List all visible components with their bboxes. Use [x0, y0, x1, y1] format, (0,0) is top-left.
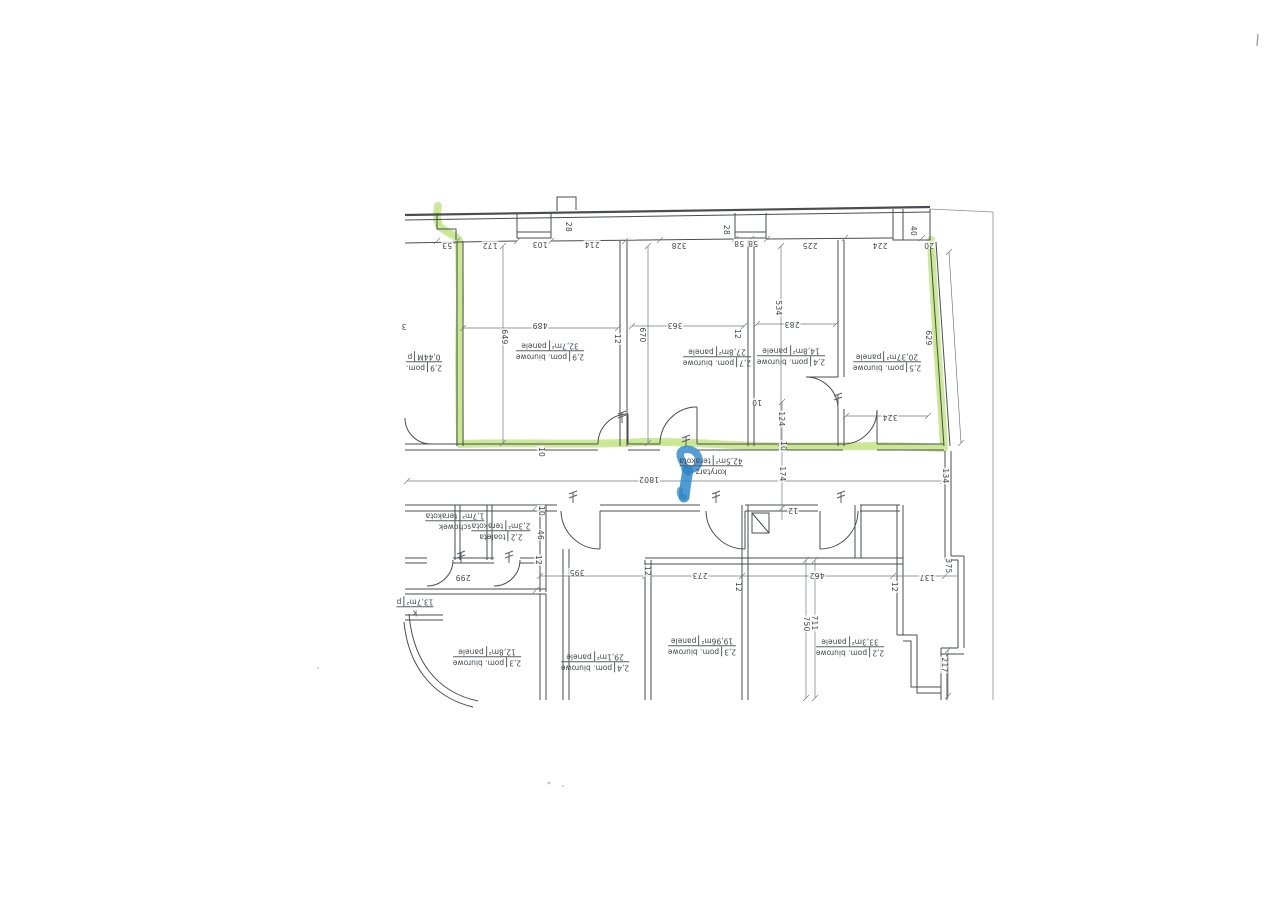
dimension-label: 214: [583, 240, 600, 248]
room-label: 2,4pom. biurowe14,8m²panele: [757, 346, 825, 367]
dimension-label: 12: [613, 333, 621, 345]
room-label-text: 2,5: [906, 363, 921, 373]
dimension-label: 10: [779, 440, 787, 452]
room-label-text: panele: [688, 347, 713, 357]
room-label-text: 1,7m²: [459, 511, 484, 521]
dimension-label: 328: [670, 241, 687, 249]
dimension-label: 12: [733, 328, 741, 340]
dimension-label: 534: [774, 299, 782, 316]
dimension-label: 10: [537, 446, 545, 458]
dimension-label: 103: [531, 240, 548, 248]
room-label-text: panele: [458, 647, 483, 657]
dimension-label: 629: [924, 329, 932, 346]
room-label-text: panele: [671, 636, 696, 646]
room-label-text: pom. biurowe: [516, 352, 567, 362]
room-label-text: p: [408, 352, 413, 362]
dimension-label: 172: [481, 241, 498, 249]
dimension-label: 58: [733, 239, 745, 247]
dimension-label: 53: [441, 241, 453, 249]
dimension-label: 12: [734, 581, 742, 593]
room-label-text: terakota: [679, 456, 710, 466]
dimension-label: 134: [941, 467, 949, 484]
dimension-label: 375: [944, 557, 952, 574]
room-label-text: 2,4: [810, 357, 825, 367]
room-label-text: 2,7: [736, 358, 751, 368]
room-label-text: 29,1m²: [594, 652, 624, 662]
dimension-label: 3: [400, 322, 407, 330]
room-label-text: pom. biurowe: [816, 648, 867, 658]
room-label-text: 0,44M: [414, 352, 440, 362]
room-label: k13,7m²p: [397, 597, 434, 618]
room-label-text: 2,9: [569, 352, 584, 362]
dimension-label: 489: [531, 321, 548, 329]
dimension-label: 299: [454, 573, 471, 581]
dimension-label: 217: [940, 656, 948, 673]
labels-layer: 5317210321432858582252242028284064948967…: [0, 0, 1280, 905]
dimension-label: 12: [890, 581, 898, 593]
dimension-label: 10: [537, 505, 545, 517]
dimension-label: 283: [783, 320, 800, 328]
dimension-label: 462: [808, 571, 825, 579]
dimension-label: 124: [777, 410, 785, 427]
room-label-text: toaleta: [479, 532, 505, 542]
dimension-label: 711: [810, 614, 818, 631]
room-label-text: p: [397, 597, 402, 607]
room-label-text: 2,3: [721, 647, 736, 657]
dimension-label: 28: [564, 221, 572, 233]
room-label-text: 32,7m²: [549, 341, 579, 351]
dimension-label: 10: [751, 398, 763, 406]
dimension-label: 58: [747, 239, 759, 247]
room-label: 2,7pom. biurowe27,8m²panele: [683, 347, 751, 368]
dimension-label: 12: [534, 554, 542, 566]
room-label-text: panele: [821, 637, 846, 647]
dimension-label: 324: [881, 413, 898, 421]
room-label-text: 2,9: [427, 363, 442, 373]
room-label-text: 33,3m²: [849, 637, 879, 647]
room-label: 2,5pom. biurowe20,37m²panele: [853, 352, 921, 373]
room-label: schowek1,7m²terakota: [426, 511, 485, 532]
room-label: 2,2pom. biurowe33,3m²panele: [816, 637, 884, 658]
dimension-label: 395: [568, 568, 585, 576]
room-label-text: 2,2: [869, 648, 884, 658]
dimension-label: 137: [918, 573, 935, 581]
room-label-text: panele: [566, 652, 591, 662]
room-label: korytarz42,5m²terakota: [679, 456, 742, 477]
dimension-label: 12: [643, 565, 651, 577]
room-label-text: pom. biurowe: [683, 358, 734, 368]
room-label-text: k: [413, 608, 417, 618]
room-label-text: terakota: [426, 511, 457, 521]
room-label-text: 27,8m²: [716, 347, 746, 357]
room-label-text: pom.: [406, 363, 425, 373]
room-label-text: 12,8m²: [486, 647, 516, 657]
room-label-text: 2,3: [506, 658, 521, 668]
dimension-label: 46: [536, 529, 544, 541]
room-label-text: pom. biurowe: [853, 363, 904, 373]
dimension-label: 224: [871, 241, 888, 249]
dimension-label: 363: [666, 321, 683, 329]
room-label-text: panele: [762, 346, 787, 356]
dimension-label: 20: [923, 241, 935, 249]
room-label-text: 19,96m²: [698, 636, 733, 646]
room-label-text: 42,5m²: [713, 456, 743, 466]
room-label-text: korytarz: [696, 467, 727, 477]
room-label: 2,9pom.0,44Mp: [406, 352, 442, 373]
room-label-text: 20,37m²: [883, 352, 918, 362]
dimension-label: 28: [722, 224, 730, 236]
dimension-label: 649: [500, 328, 508, 345]
room-label-text: pom. biurowe: [757, 357, 808, 367]
dimension-label: 225: [801, 241, 818, 249]
room-label-text: 2,4: [614, 663, 629, 673]
room-label-text: 13,7m²: [403, 597, 433, 607]
room-label: 2,9pom. biurowe32,7m²panele: [516, 341, 584, 362]
dimension-label: 174: [778, 465, 786, 482]
room-label: 2,3pom. biurowe19,96m²panele: [668, 636, 736, 657]
room-label: 2,3pom. biurowe12,8m²panele: [453, 647, 521, 668]
room-label: 2,4pom. biurowe29,1m²panele: [561, 652, 629, 673]
room-label-text: 14,8m²: [790, 346, 820, 356]
scanned-floor-plan-page: 5317210321432858582252242028284064948967…: [0, 0, 1280, 905]
dimension-label: 750: [802, 615, 810, 632]
dimension-label: 670: [638, 326, 646, 343]
dimension-label: 1802: [638, 475, 660, 483]
room-label-text: schowek: [439, 522, 471, 532]
room-label-text: pom. biurowe: [668, 647, 719, 657]
room-label-text: pom. biurowe: [561, 663, 612, 673]
dimension-label: 273: [691, 571, 708, 579]
dimension-label: 40: [909, 225, 917, 237]
room-label-text: pom. biurowe: [453, 658, 504, 668]
room-label-text: 2,2: [508, 532, 523, 542]
room-label-text: panele: [521, 341, 546, 351]
dimension-label: 12: [787, 506, 799, 514]
room-label-text: panele: [856, 352, 881, 362]
room-label-text: 2,3m²: [505, 521, 530, 531]
